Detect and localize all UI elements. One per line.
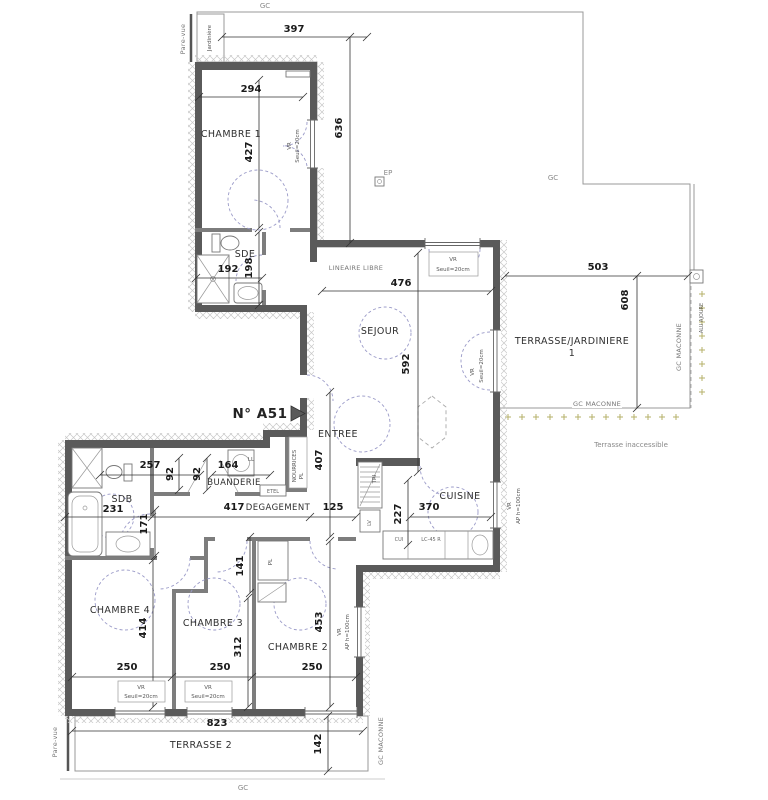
dim-sejour-height: 592 [401,354,412,375]
floor-plan: 397 294 427 198 636 192 476 503 608 592 … [0,0,768,800]
room-label-buanderie: BUANDERIE [207,478,261,488]
dim-terrace-height: 636 [334,118,345,139]
svg-text:VR: VR [337,628,343,636]
svg-text:AP h=100cm: AP h=100cm [516,488,522,524]
dim-ch1-width: 294 [241,84,262,95]
sdb-fixtures [68,448,150,556]
room-label-degagement: DEGAGEMENT [246,503,311,513]
apartment-number: N° A51 [233,406,288,422]
svg-text:Seuil=20cm: Seuil=20cm [479,349,485,382]
terrasse-inaccessible-label: Terrasse inaccessible [593,441,668,449]
svg-text:VR: VR [507,502,513,510]
dim-ch3-width: 250 [210,662,231,673]
room-label-sdb: SDB [111,494,132,505]
vr-label-cuisine-window: VR AP h=100cm [507,488,522,524]
toilet-tank-icon [212,234,220,252]
cui-label: CUI [395,537,404,543]
pare-vue-bottom: Pare-vue [51,727,59,758]
vr-label-french-door: VR Seuil=20cm [470,349,485,382]
dim-92b: 92 [192,467,203,481]
svg-text:VR: VR [204,685,212,691]
svg-text:VR: VR [449,257,457,263]
room-label-sde: SDE [235,249,256,260]
jardiniere-label: Jardinière [206,24,213,52]
dim-92a: 92 [165,467,176,481]
dim-ch3-height: 312 [233,637,244,658]
counter [383,531,493,559]
room-label-terrasse-jardiniere: TERRASSE/JARDINIERE [514,336,629,347]
dim-sde-width: 192 [218,264,239,275]
etel-label: ETEL [267,489,279,495]
plus-marks-bottom [505,414,679,420]
bathtub-icon [68,492,102,556]
dim-top-width: 397 [284,24,305,35]
vanity-icon [106,532,150,556]
dim-entree-height: 407 [314,450,325,471]
dim-sde-height: 198 [244,258,255,279]
chambre2-closets [258,541,288,602]
lc45-label: LC-45 R [421,537,441,543]
svg-text:VR: VR [287,142,293,150]
dim-terrasse2-width: 823 [207,718,228,729]
toilet-tank-icon [124,464,132,481]
dim-nook-height: 141 [235,556,246,577]
room-label-chambre3: CHAMBRE 3 [183,618,243,629]
gc-label-bottom: GC [238,784,248,792]
svg-text:Seuil=20cm: Seuil=20cm [124,694,157,700]
cuisine-fixtures [358,396,493,559]
exterior-walls [65,62,500,716]
vr-label-ch4-window: VR Seuil=20cm [118,681,165,702]
vr-label-sejour-window: VR Seuil=20cm [429,252,478,276]
room-label-chambre4: CHAMBRE 4 [90,605,150,616]
ll-label: LL [248,457,255,463]
gc-maconne-right: GC MACONNE [675,323,683,371]
svg-text:Seuil=20cm: Seuil=20cm [295,129,301,162]
gc-maconne-horizontal: GC MACONNE [573,400,621,408]
dim-ch1-height: 427 [244,142,255,163]
dim-ch2-width: 250 [302,662,323,673]
svg-text:Seuil=20cm: Seuil=20cm [436,267,469,273]
wall-insulation-hatch [58,55,507,723]
dim-terrasse1-width: 503 [588,262,609,273]
dim-buanderie-width: 164 [218,460,239,471]
vr-label-ch3-window: VR Seuil=20cm [185,681,232,702]
dim-degagement: 417 [224,502,245,513]
toilet-icon [106,466,122,479]
room-label-sejour: SEJOUR [361,326,399,337]
dim-ch2-height: 453 [314,612,325,633]
svg-text:Seuil=20cm: Seuil=20cm [191,694,224,700]
dim-hall-width: 125 [323,502,344,513]
room-label-terrasse-jardiniere-num: 1 [569,348,575,359]
vr-label-ch1-window: VR Seuil=20cm [287,129,301,162]
gc-label-mid: GC [548,174,558,182]
nourrices-pl-label: PL [299,472,305,479]
dining-table-icon [418,396,446,448]
floor-plan-page: 397 294 427 198 636 192 476 503 608 592 … [0,0,768,800]
nourrices-label: NOURRICES [292,449,298,482]
ep-label: EP [384,169,393,177]
terrace-top-grid [197,12,690,408]
vr-label-ch2-window: VR AP h=100cm [337,614,351,650]
room-label-terrasse2: TERRASSE 2 [169,740,232,751]
radiator-icon [286,71,310,77]
pare-vue-top: Pare-vue [179,24,187,55]
dim-sdb-top: 257 [140,460,161,471]
dim-terrasse2-depth: 142 [313,734,324,755]
svg-text:AP h=100cm: AP h=100cm [345,614,351,650]
lineaire-libre-label: LINEAIRE LIBRE [329,264,383,272]
room-label-chambre1: CHAMBRE 1 [201,129,261,140]
dim-sdb-width: 231 [103,504,124,515]
lv-label: LV [367,520,373,526]
dim-tri-height: 227 [393,504,404,525]
ep-box-top [375,177,384,186]
pl-closet-label: PL [268,558,274,565]
dim-sdb-side: 171 [139,514,150,535]
toilet-icon [221,236,239,250]
room-label-entree: ENTREE [318,429,358,440]
room-label-cuisine: CUISINE [439,491,480,502]
dim-sejour-width: 476 [391,278,412,289]
dim-ch4-width: 250 [117,662,138,673]
gc-maconne-terrasse2: GC MACONNE [377,717,385,765]
room-label-chambre2: CHAMBRE 2 [268,642,328,653]
dim-terrasse1-height: 608 [620,290,631,311]
alu-ajoure-label: ALU AJOURE [699,303,705,333]
dim-ch4-height: 414 [138,618,149,639]
svg-text:VR: VR [470,368,476,376]
dim-cuisine-width: 370 [419,502,440,513]
tri-label: TRI [372,474,378,484]
gc-label-top: GC [260,2,270,10]
svg-text:VR: VR [137,685,145,691]
